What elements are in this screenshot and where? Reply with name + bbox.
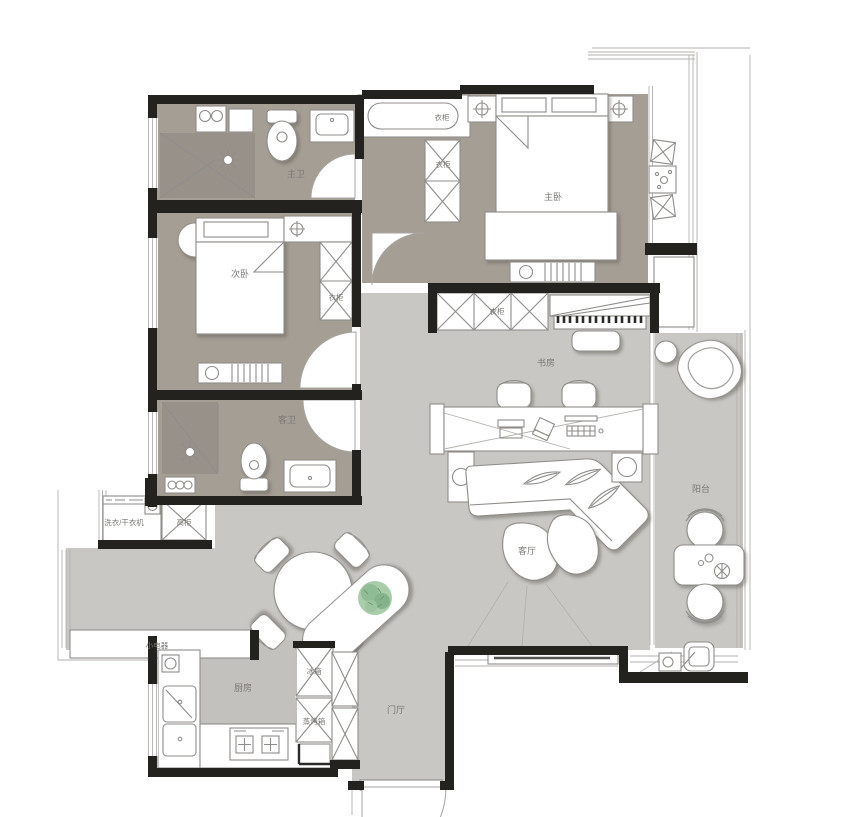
wardrobe-corridor-cabinet [425,140,460,222]
kitchen-base-cabinet [299,744,330,764]
room-label-balcony: 阳台 [692,483,710,494]
floor-entry-hall [352,648,448,784]
room-label-master-bath: 主卫 [287,168,305,179]
window [147,684,158,756]
fixture-label-wardrobe-bedroom: 衣柜 [329,292,344,302]
fixture-label-steam-oven: 蒸烤箱 [303,716,326,726]
office-chair [497,381,531,409]
shower-head-icon [179,441,201,463]
balcony-chair [686,509,724,548]
balcony-slider [650,333,654,645]
nightstand [468,96,496,122]
fixture-label-wardrobe-corridor: 衣柜 [436,159,451,169]
room-label-master-bedroom: 主卧 [544,191,562,202]
window [147,238,158,328]
fixture-label-wardrobe-top: 衣柜 [435,112,450,122]
fixture-label-small-appliances: 小电器 [146,640,169,650]
plant-icon [358,581,392,615]
window-top-balcony [588,52,695,59]
room-label-living: 客厅 [518,545,536,556]
stool [655,341,677,363]
basin-trio [165,477,195,493]
desk-side-panel [430,404,444,454]
bed-end-bench [485,212,617,260]
washbasin [310,110,354,142]
toilet [267,110,297,161]
balcony-chair [686,584,724,623]
floor-plan-svg: 主卫 衣柜 衣柜 主卧 次卧 衣柜 客卫 洗衣/干衣机 高柜 衣柜 书房 客厅 … [0,0,860,817]
dresser [510,262,595,282]
balcony-table [674,545,744,585]
dresser [198,363,282,383]
fixture-label-wardrobe-study: 衣柜 [490,306,505,316]
nightstand [605,96,633,122]
piano-bench [572,331,620,351]
room-label-second-bedroom: 次卧 [231,268,249,279]
office-chair [562,381,596,409]
round-side-table [612,453,642,482]
floor-cushion-icon [651,195,676,220]
wardrobe-top-cabinet [358,95,470,137]
glass-master-balcony [649,86,653,243]
floor-cushion-icon [651,140,676,165]
room-label-entry-hall: 门厅 [387,704,405,715]
fixture-label-fridge: 冰箱 [307,666,322,676]
floor-plan-page: 主卫 衣柜 衣柜 主卧 次卧 衣柜 客卫 洗衣/干衣机 高柜 衣柜 书房 客厅 … [0,0,860,817]
room-label-guest-bath: 客卫 [278,414,296,425]
desk-side-panel [643,404,658,454]
room-label-kitchen: 厨房 [234,682,252,693]
shoe-cabinet [332,652,358,760]
tea-tray [649,166,676,193]
toilet [240,443,268,491]
entry-door [360,780,446,817]
bath-cabinet [229,109,253,132]
fixture-label-washer-dryer: 洗衣/干衣机 [104,517,144,527]
room-label-study: 书房 [537,357,555,368]
window [147,118,158,188]
window [147,412,158,474]
fixture-label-tall-cabinet: 高柜 [177,517,192,527]
shower-head-icon [217,149,239,171]
door-arc-entry [362,787,446,817]
gas-stove [230,728,288,760]
